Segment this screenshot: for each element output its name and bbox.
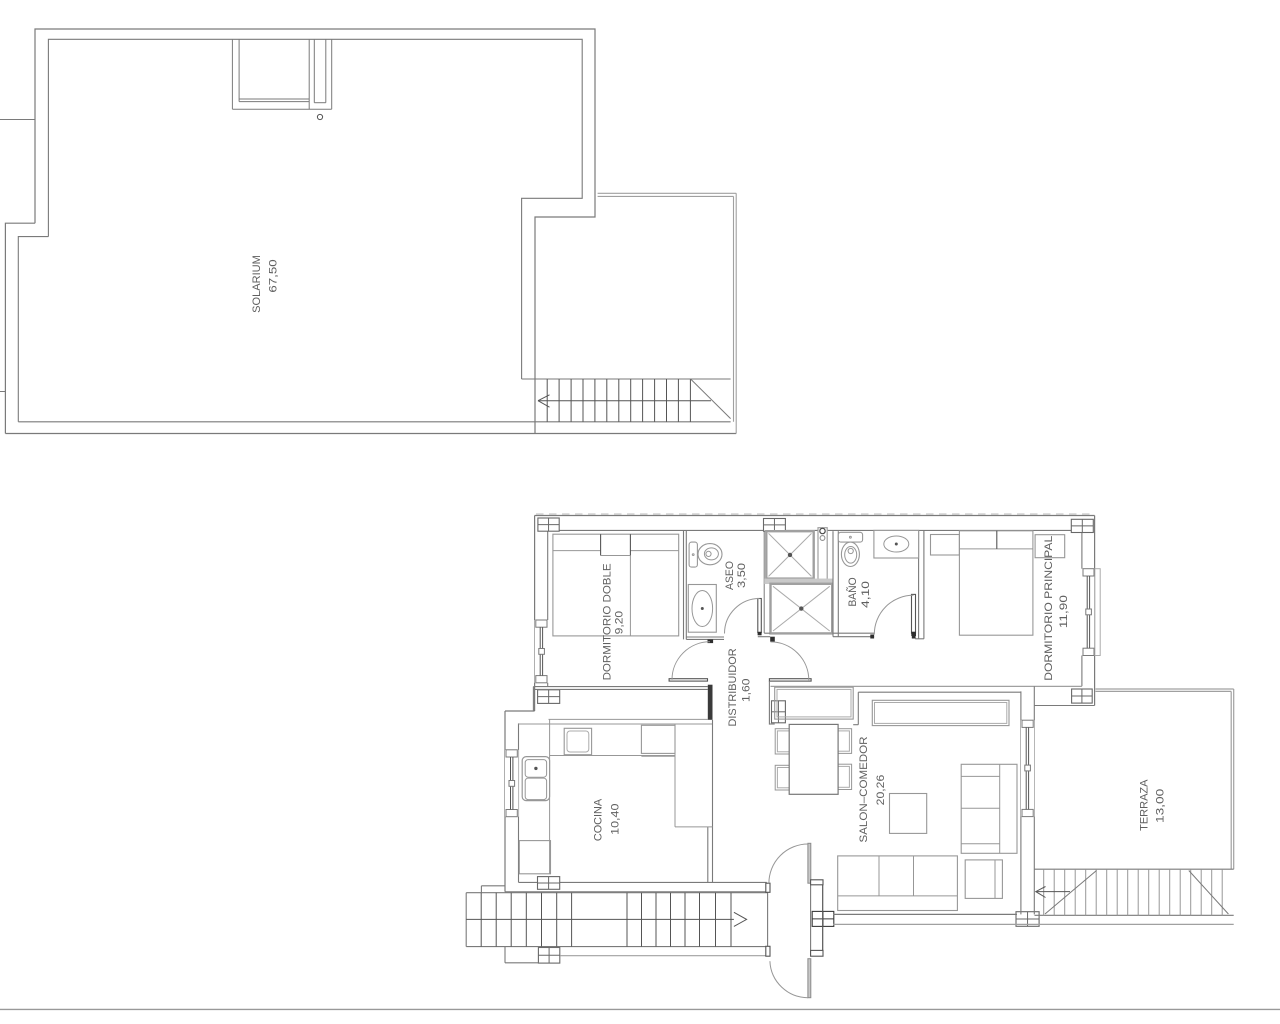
svg-text:COCINA: COCINA	[593, 798, 605, 841]
svg-text:20,26: 20,26	[875, 775, 887, 806]
svg-text:BAÑO: BAÑO	[846, 577, 859, 607]
svg-text:9,20: 9,20	[614, 611, 626, 635]
svg-text:ASEO: ASEO	[724, 561, 736, 590]
svg-text:3,50: 3,50	[736, 563, 748, 588]
svg-text:13,00: 13,00	[1155, 789, 1167, 823]
svg-text:SOLARIUM: SOLARIUM	[251, 255, 263, 313]
svg-text:10,40: 10,40	[610, 804, 622, 835]
svg-text:TERRAZA: TERRAZA	[1139, 779, 1151, 831]
svg-text:DORMITORIO DOBLE: DORMITORIO DOBLE	[602, 563, 614, 680]
svg-text:DORMITORIO PRINCIPAL: DORMITORIO PRINCIPAL	[1043, 536, 1055, 681]
svg-text:SALON–COMEDOR: SALON–COMEDOR	[858, 736, 870, 842]
svg-text:67,50: 67,50	[268, 259, 280, 292]
svg-text:DISTRIBUIDOR: DISTRIBUIDOR	[727, 648, 739, 726]
svg-text:1,60: 1,60	[741, 679, 753, 702]
svg-text:4,10: 4,10	[860, 581, 872, 608]
svg-text:11,90: 11,90	[1058, 595, 1070, 628]
